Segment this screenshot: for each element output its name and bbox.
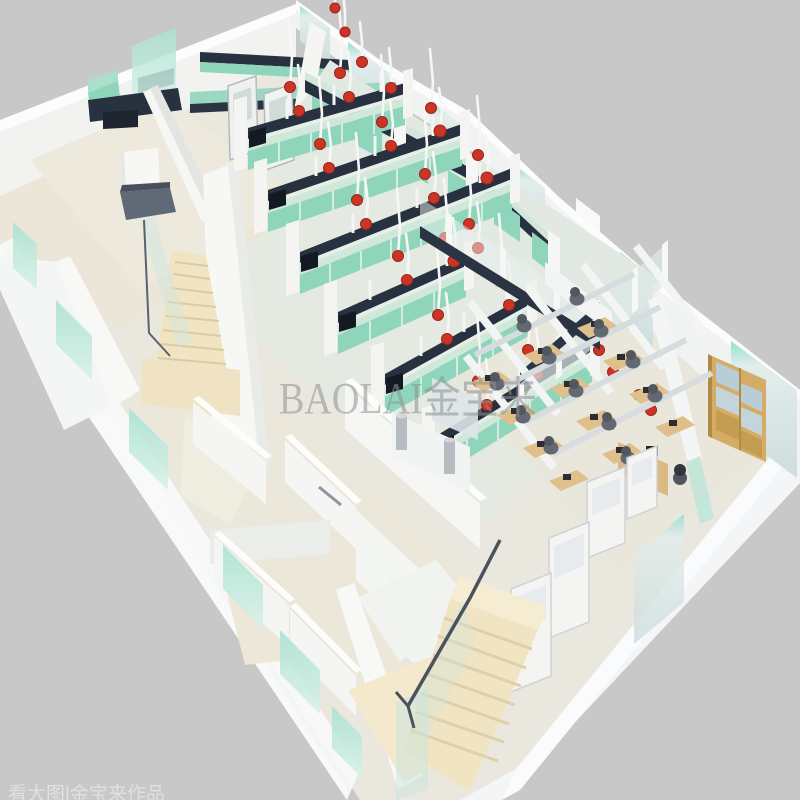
svg-text:BAOLAI金宝来: BAOLAI金宝来 — [279, 374, 537, 423]
svg-text:看大图|金宝来作品: 看大图|金宝来作品 — [8, 783, 165, 800]
